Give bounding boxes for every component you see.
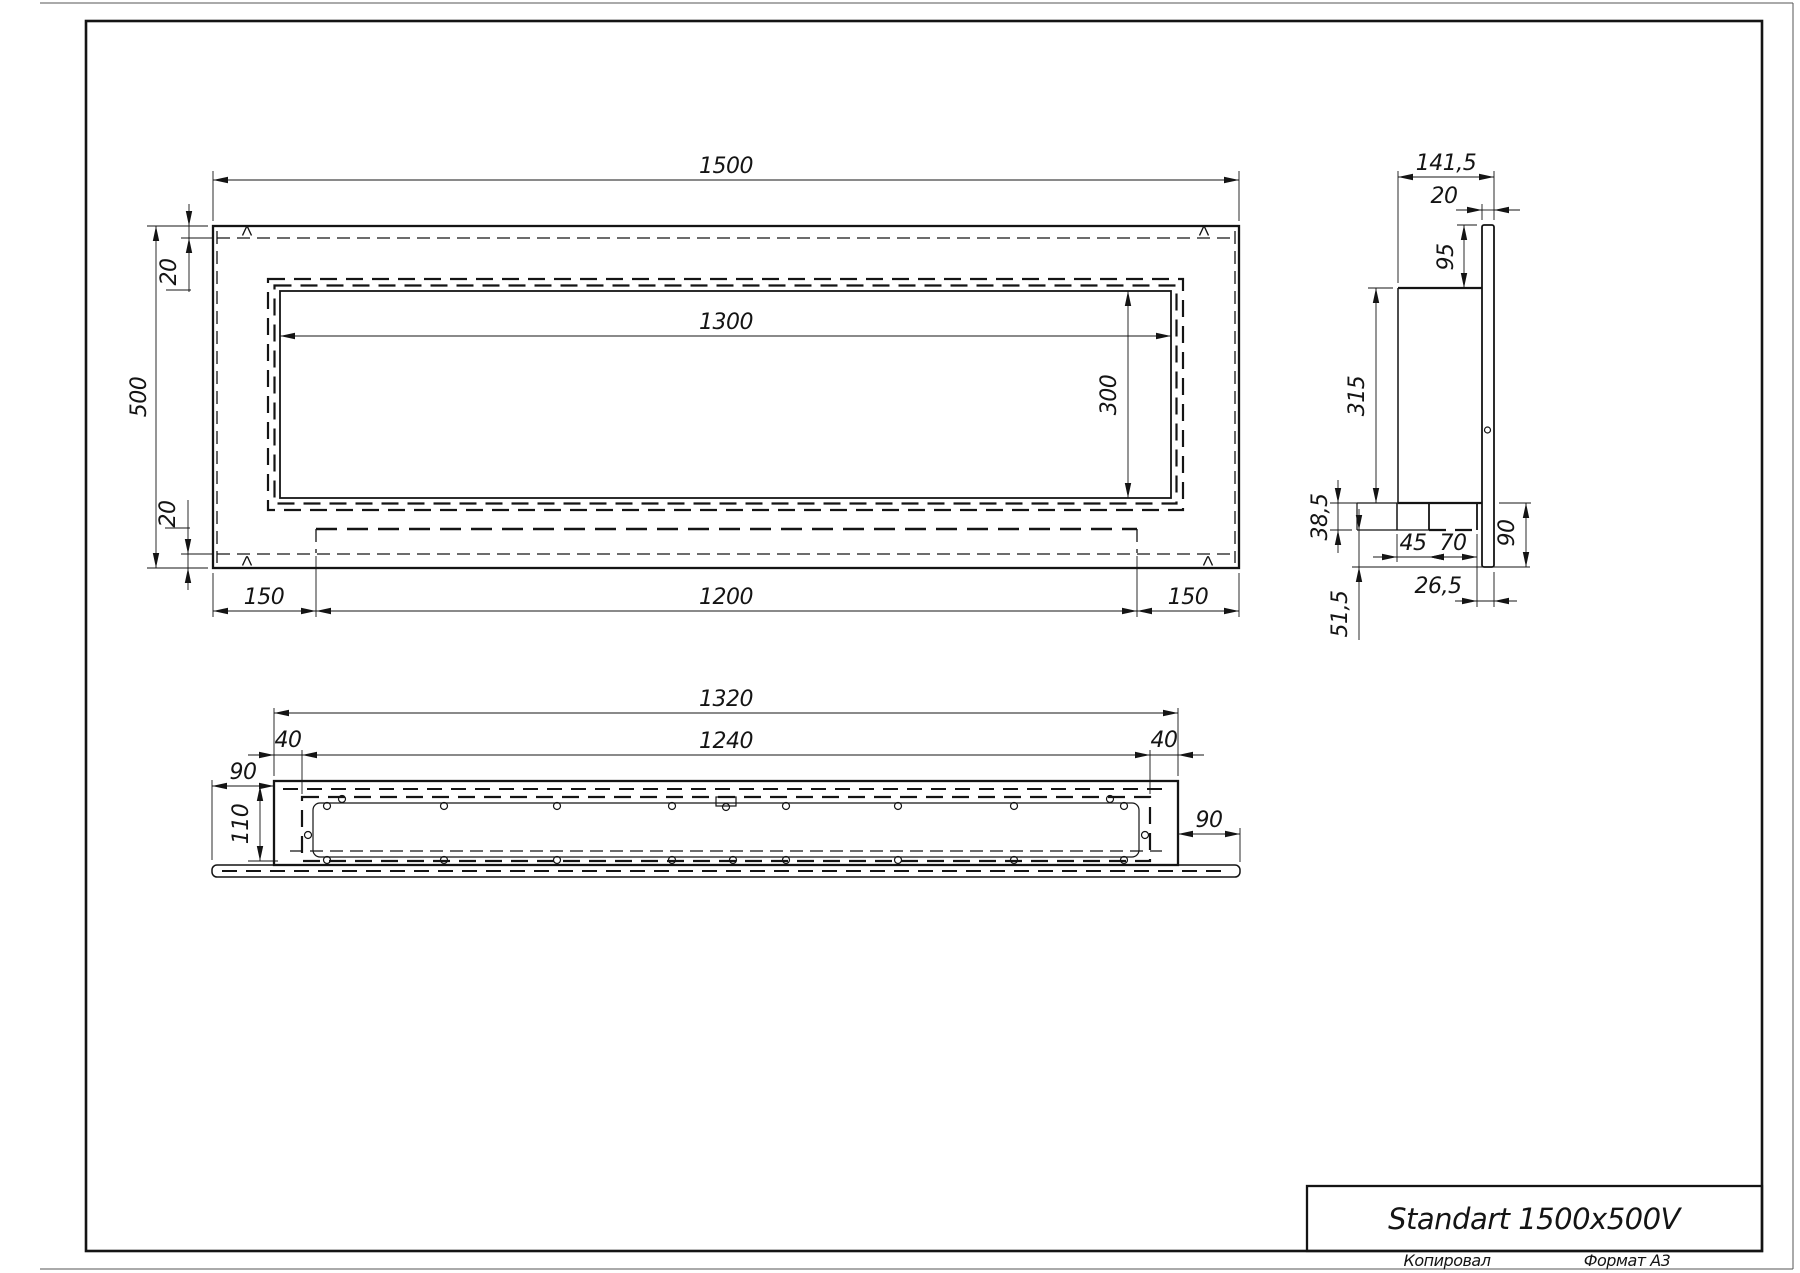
dim-front-tray-width: 1200	[699, 585, 753, 610]
dim-side-body-height: 315	[1345, 376, 1370, 417]
dim-bottom-right-overhang: 90	[1196, 808, 1223, 833]
copied-by-label: Копировал	[1404, 1251, 1491, 1270]
side-view: 141,5 20 95 315 38,5 51,5 90	[1308, 151, 1531, 640]
fastener-hook-icon	[243, 227, 1213, 566]
dim-front-left-margin: 150	[244, 585, 285, 610]
dim-side-shelf-inset: 45	[1400, 531, 1427, 556]
dim-front-top-flange: 20	[157, 259, 182, 286]
dim-front-overall-width: 1500	[699, 154, 753, 179]
dim-front-bottom-flange: 20	[156, 501, 181, 528]
center-notch	[716, 797, 736, 806]
front-view: 1500 500 1300 300 20 20	[127, 154, 1239, 617]
dim-side-plate-top-offset: 95	[1434, 244, 1459, 271]
dim-side-back-offset: 26,5	[1415, 574, 1462, 599]
technical-drawing: 1500 500 1300 300 20 20	[0, 0, 1800, 1273]
dim-side-shelf-height: 38,5	[1308, 494, 1333, 541]
drawing-sheet: 1500 500 1300 300 20 20	[0, 0, 1800, 1273]
dim-bottom-opening-length: 1240	[699, 729, 753, 754]
dim-front-overall-height: 500	[127, 377, 152, 418]
dim-front-opening-height: 300	[1097, 375, 1122, 416]
dim-side-plate-thickness: 20	[1431, 184, 1458, 209]
dim-side-right-drop: 90	[1495, 520, 1520, 547]
dim-bottom-left-overhang: 90	[230, 760, 257, 785]
front-outer-frame	[213, 226, 1239, 568]
plate-hole	[1485, 427, 1491, 433]
dim-side-overall-depth: 141,5	[1416, 151, 1476, 176]
bottom-view: 1320 1240 40 40 90 110 90	[212, 687, 1240, 877]
dim-front-right-margin: 150	[1168, 585, 1209, 610]
dim-bottom-left-end: 40	[275, 728, 302, 753]
dim-side-burner-width: 70	[1440, 531, 1467, 556]
format-label: Формат А3	[1584, 1251, 1671, 1270]
drawing-frame	[86, 21, 1762, 1251]
dim-front-opening-width: 1300	[699, 310, 753, 335]
dim-bottom-right-end: 40	[1151, 728, 1178, 753]
dim-side-lower-drop: 51,5	[1328, 591, 1353, 638]
paper-edges	[40, 3, 1793, 1269]
title-block: Standart 1500x500V Копировал Формат А3	[1307, 1186, 1762, 1270]
dim-bottom-body-length: 1320	[699, 687, 753, 712]
bottom-body	[274, 781, 1178, 865]
drawing-title: Standart 1500x500V	[1388, 1202, 1682, 1236]
dim-bottom-inner-depth: 110	[229, 804, 254, 845]
side-front-plate	[1482, 225, 1494, 567]
